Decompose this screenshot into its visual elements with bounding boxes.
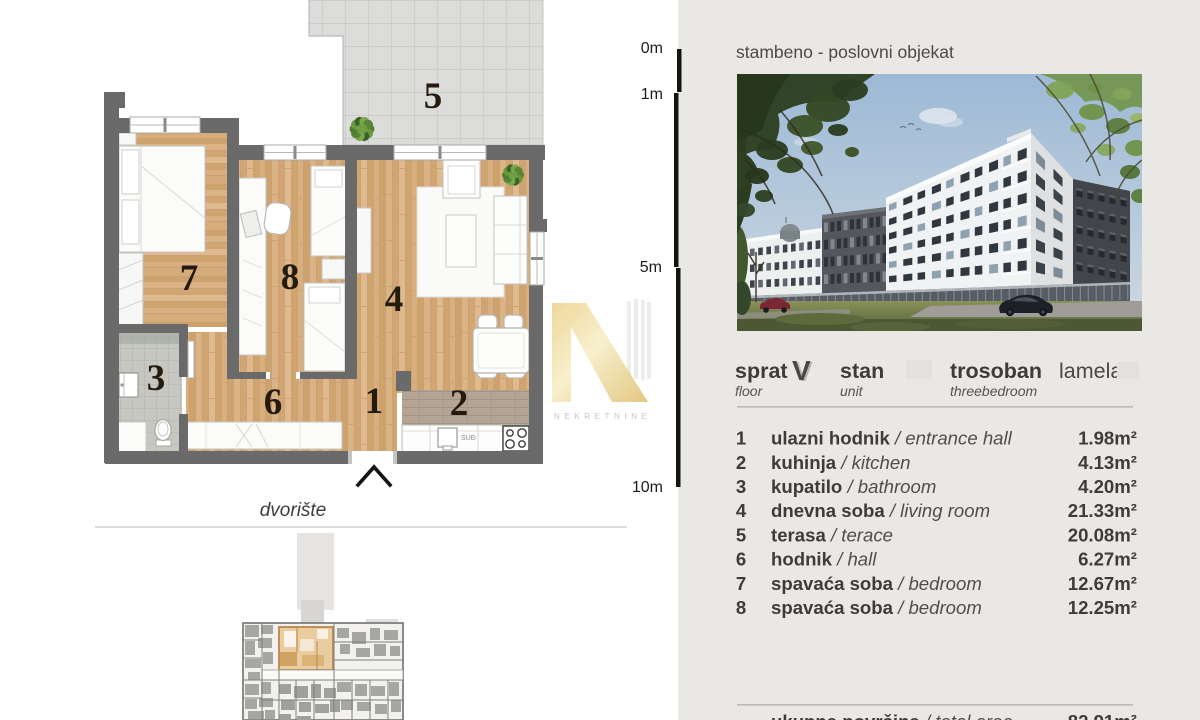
svg-text:stambeno - poslovni objekat: stambeno - poslovni objekat bbox=[736, 42, 954, 62]
svg-text:4.13m²: 4.13m² bbox=[1078, 452, 1137, 473]
svg-text:1m: 1m bbox=[641, 86, 663, 103]
svg-text:21.33m²: 21.33m² bbox=[1068, 500, 1137, 521]
svg-text:1: 1 bbox=[365, 381, 384, 422]
svg-text:sprat: sprat bbox=[735, 359, 788, 383]
svg-text:4: 4 bbox=[385, 279, 404, 320]
svg-text:threebedroom: threebedroom bbox=[950, 383, 1038, 399]
svg-text:2: 2 bbox=[450, 383, 469, 424]
svg-text:5: 5 bbox=[736, 524, 746, 545]
svg-text:kuhinja / kitchen: kuhinja / kitchen bbox=[771, 452, 911, 473]
svg-text:2: 2 bbox=[736, 452, 746, 473]
svg-text:12.25m²: 12.25m² bbox=[1068, 597, 1137, 618]
svg-text:stan: stan bbox=[840, 359, 884, 383]
svg-text:7: 7 bbox=[180, 258, 199, 299]
svg-text:4.20m²: 4.20m² bbox=[1078, 476, 1137, 497]
svg-text:dnevna soba / living room: dnevna soba / living room bbox=[771, 500, 990, 521]
svg-text:ukupna površina / total area: ukupna površina / total area bbox=[771, 711, 1013, 720]
svg-text:spavaća soba / bedroom: spavaća soba / bedroom bbox=[771, 573, 982, 594]
svg-text:SUĐ: SUĐ bbox=[461, 435, 476, 442]
svg-text:1: 1 bbox=[736, 428, 746, 449]
svg-text:unit: unit bbox=[840, 383, 864, 399]
svg-text:6: 6 bbox=[736, 549, 746, 570]
svg-text:12.67m²: 12.67m² bbox=[1068, 573, 1137, 594]
svg-text:5: 5 bbox=[424, 76, 443, 117]
svg-text:V: V bbox=[792, 355, 811, 386]
svg-text:3: 3 bbox=[736, 476, 746, 497]
svg-text:8: 8 bbox=[736, 597, 746, 618]
svg-text:4: 4 bbox=[736, 500, 747, 521]
svg-text:5m: 5m bbox=[640, 259, 662, 276]
svg-text:lamela: lamela bbox=[1059, 359, 1122, 383]
svg-text:ulazni hodnik / entrance hall: ulazni hodnik / entrance hall bbox=[771, 428, 1013, 449]
svg-text:kupatilo / bathroom: kupatilo / bathroom bbox=[771, 476, 936, 497]
svg-text:spavaća soba / bedroom: spavaća soba / bedroom bbox=[771, 597, 982, 618]
svg-text:7: 7 bbox=[736, 573, 746, 594]
svg-text:floor: floor bbox=[735, 383, 764, 399]
svg-text:6.27m²: 6.27m² bbox=[1078, 549, 1137, 570]
svg-text:NEKRETNINE: NEKRETNINE bbox=[554, 412, 652, 421]
svg-text:10m: 10m bbox=[632, 479, 663, 496]
svg-text:3: 3 bbox=[147, 358, 166, 399]
svg-text:terasa / terace: terasa / terace bbox=[771, 524, 893, 545]
svg-text:82.91m²: 82.91m² bbox=[1068, 711, 1137, 720]
svg-text:0m: 0m bbox=[641, 40, 663, 57]
svg-text:hodnik / hall: hodnik / hall bbox=[771, 549, 877, 570]
svg-text:dvorište: dvorište bbox=[260, 500, 327, 521]
svg-text:trosoban: trosoban bbox=[950, 359, 1042, 383]
svg-text:6: 6 bbox=[264, 382, 283, 423]
svg-text:1.98m²: 1.98m² bbox=[1078, 428, 1137, 449]
svg-text:20.08m²: 20.08m² bbox=[1068, 524, 1137, 545]
svg-text:8: 8 bbox=[281, 257, 300, 298]
